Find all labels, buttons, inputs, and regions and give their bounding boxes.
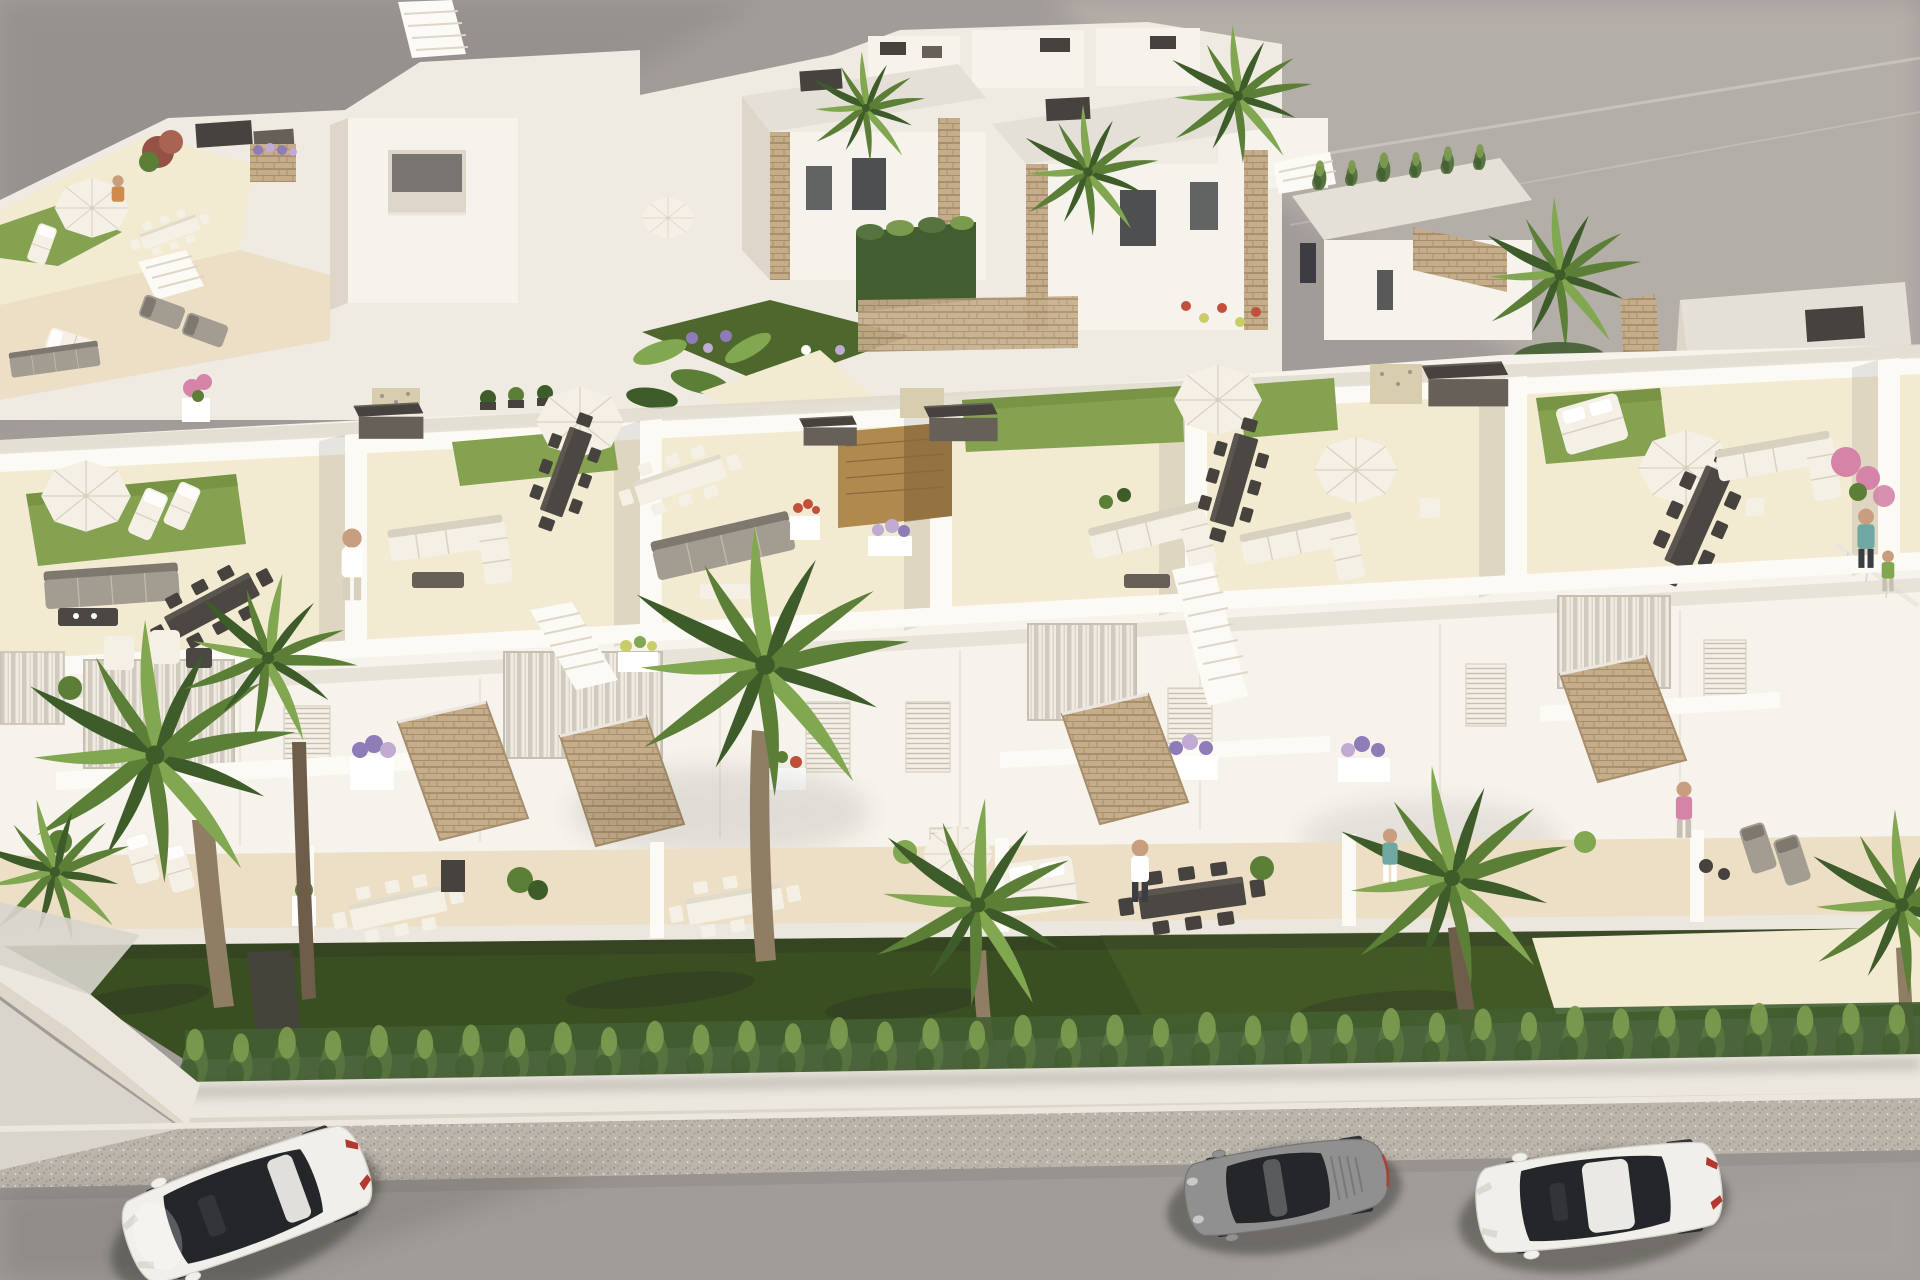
parasol <box>1314 437 1398 504</box>
stair-bulkhead <box>1422 362 1508 406</box>
barbecue <box>441 860 465 892</box>
parasol <box>41 460 131 531</box>
coffee-table <box>58 608 118 626</box>
coffee-table <box>1124 574 1170 588</box>
armchair <box>150 630 180 664</box>
stair-bulkhead <box>799 416 856 445</box>
architectural-render-scene: Aerial 3D architectural rendering of a w… <box>0 0 1920 1280</box>
render-canvas: Aerial 3D architectural rendering of a w… <box>0 0 1920 1280</box>
flower-planter-purple <box>350 735 396 790</box>
side-table <box>1420 498 1440 518</box>
parasol <box>642 197 695 239</box>
person-back-terrace-seated <box>112 175 125 202</box>
louver-window <box>1466 664 1506 726</box>
side-table <box>1746 498 1764 516</box>
stair-bulkhead <box>924 403 998 441</box>
armchair <box>104 636 134 670</box>
stair-bulkhead <box>354 403 424 439</box>
coffee-table <box>412 572 464 588</box>
louver-window <box>906 702 950 772</box>
potted-plant <box>58 676 82 700</box>
